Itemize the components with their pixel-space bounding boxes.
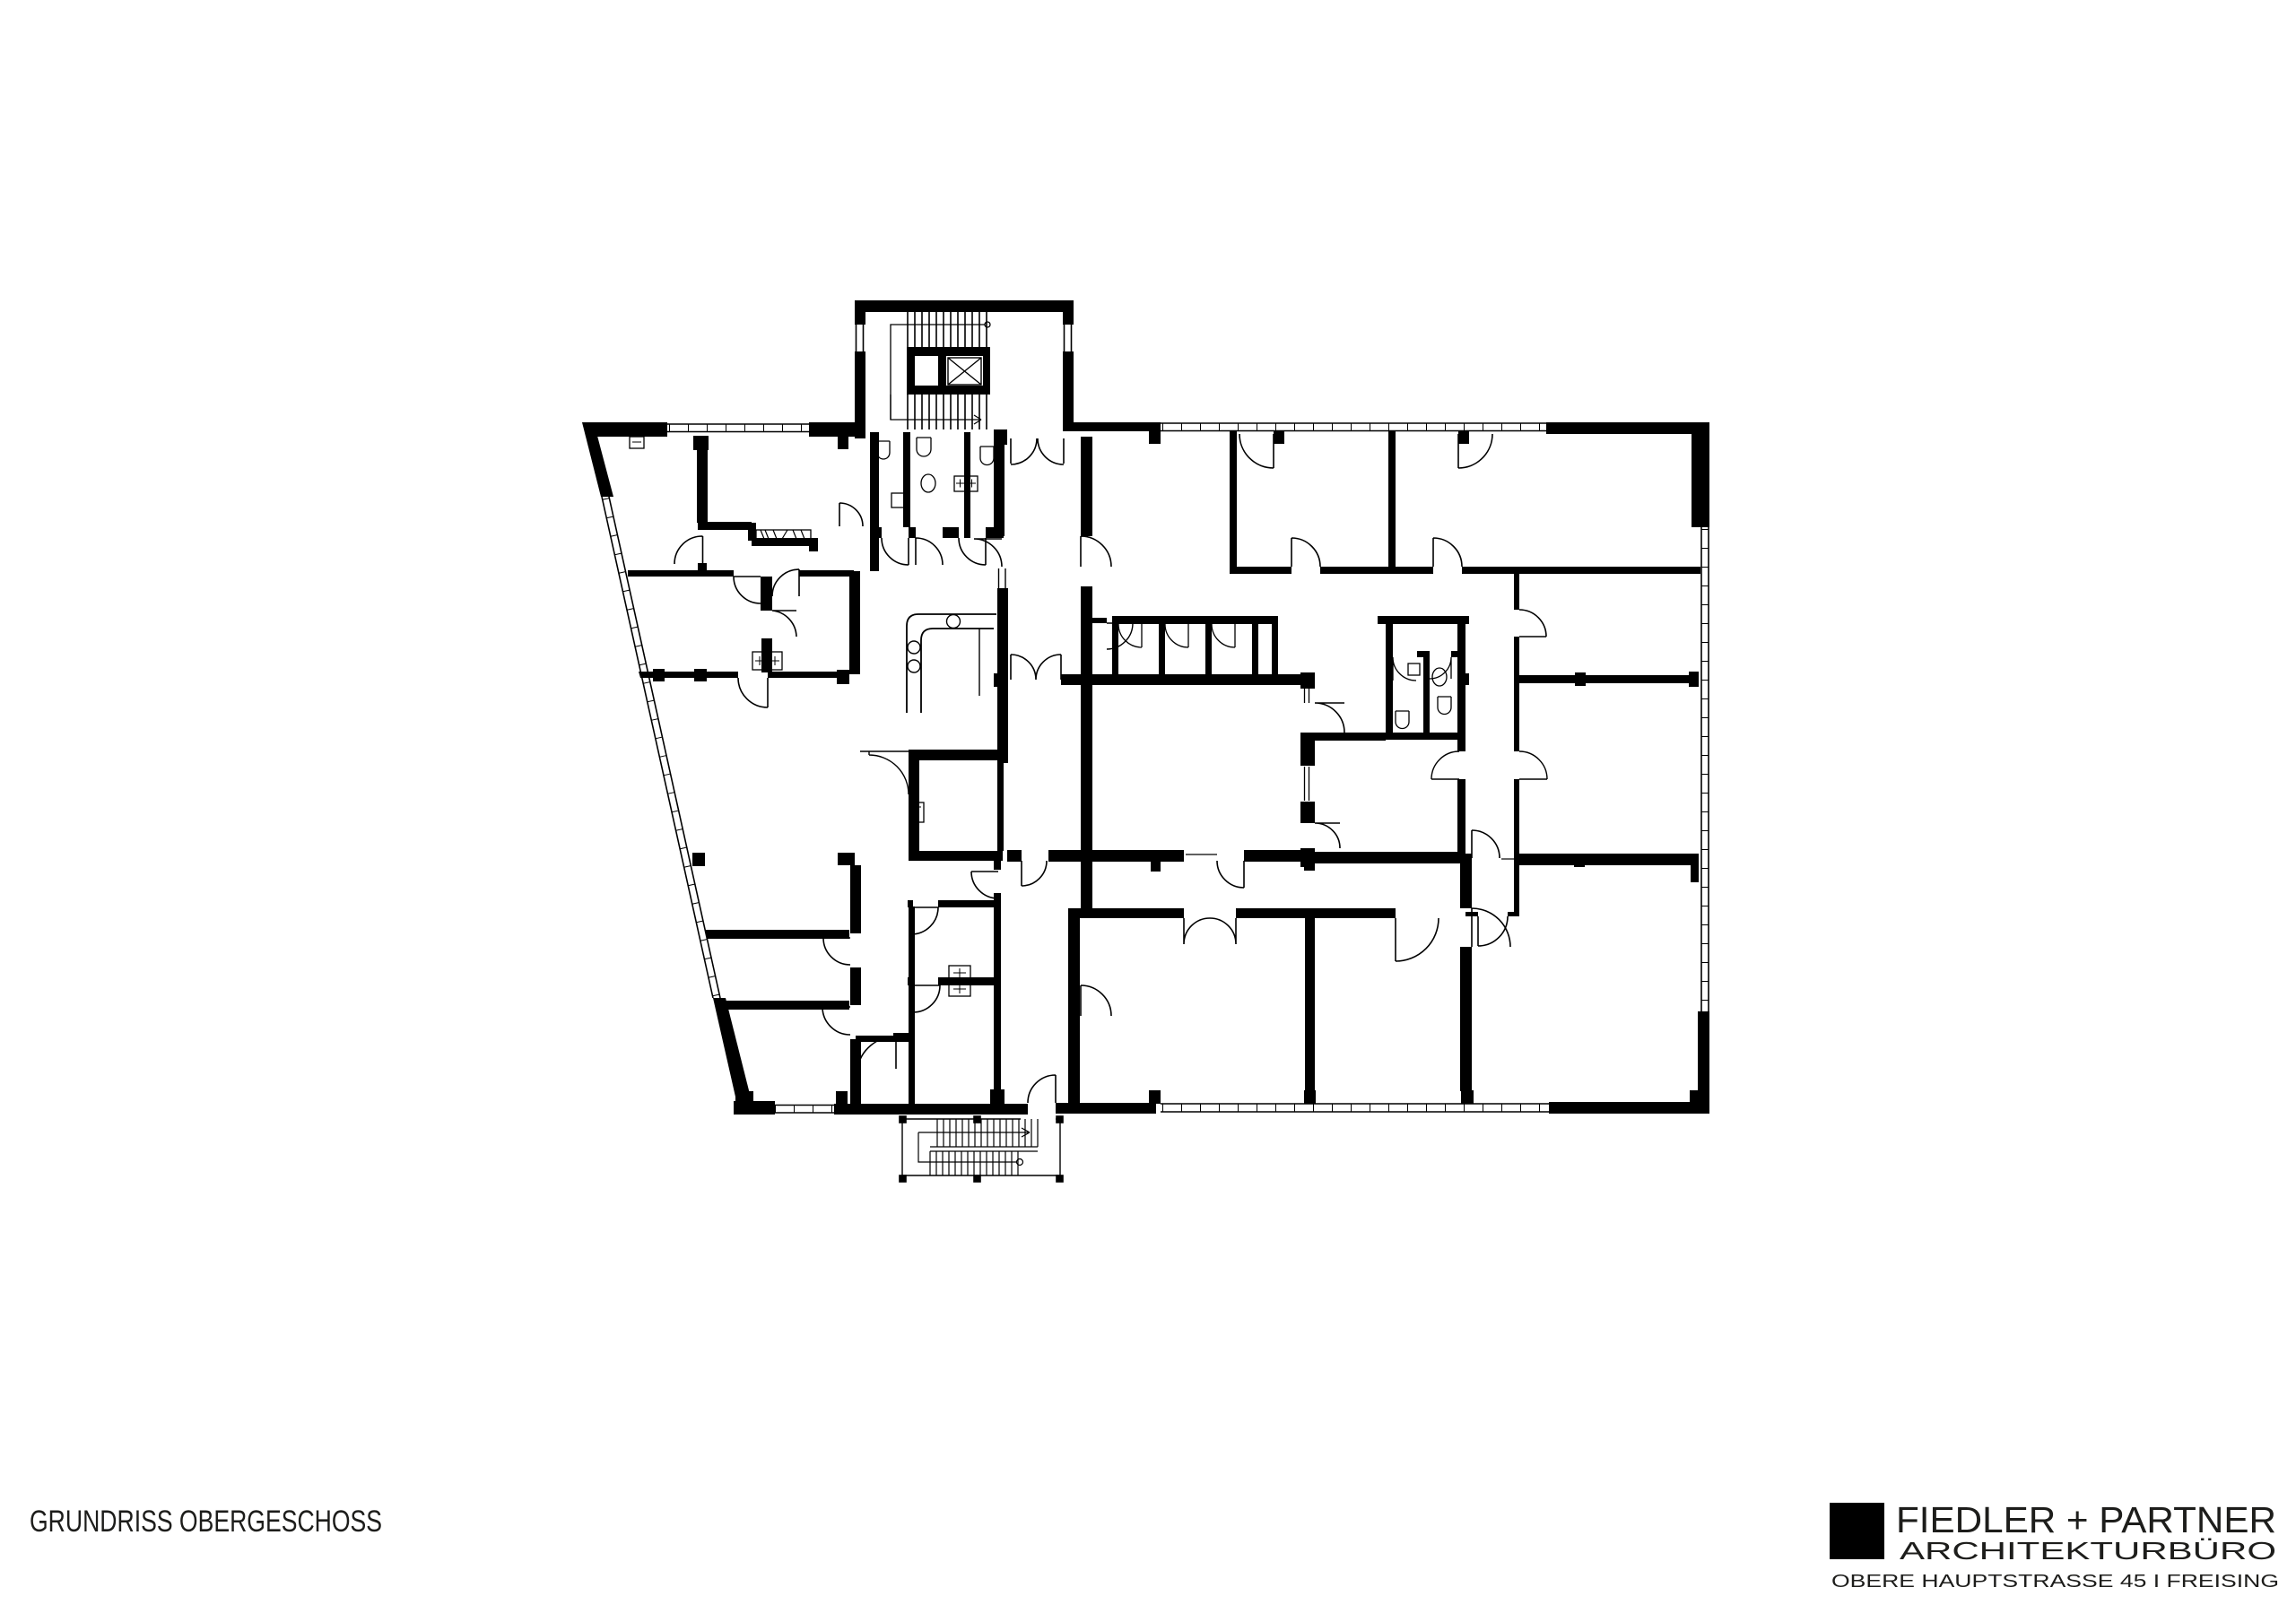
svg-text:GRUNDRISS OBERGESCHOSS: GRUNDRISS OBERGESCHOSS [30, 1505, 382, 1539]
svg-text:FIEDLER + PARTNER: FIEDLER + PARTNER [1896, 1499, 2276, 1540]
svg-text:OBERE HAUPTSTRASSE 45 I FREISI: OBERE HAUPTSTRASSE 45 I FREISING [1831, 1571, 2279, 1592]
svg-text:ARCHITEKTURBÜRO: ARCHITEKTURBÜRO [1900, 1537, 2276, 1565]
